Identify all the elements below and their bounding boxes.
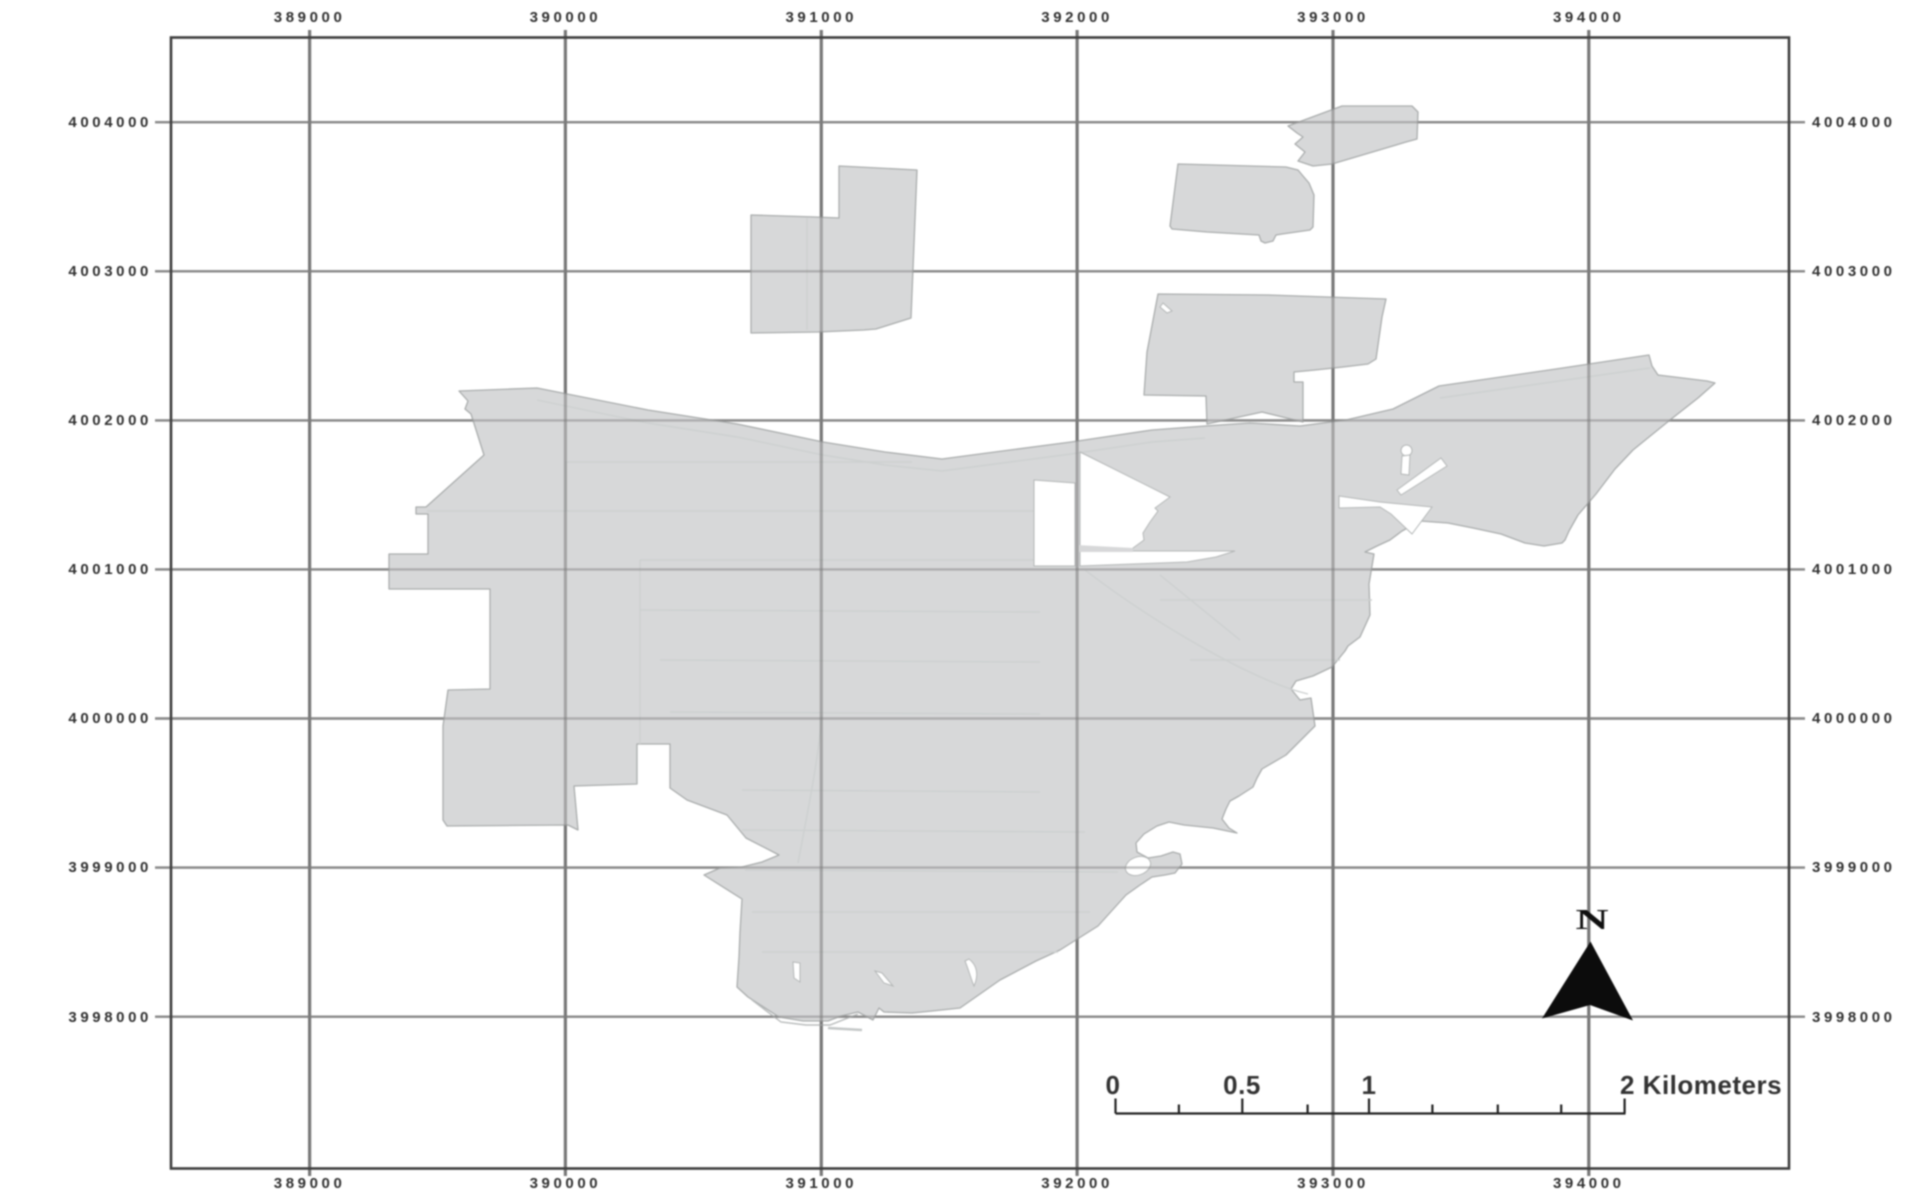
svg-text:392000: 392000 [1041,1175,1113,1192]
svg-text:0: 0 [1106,1070,1121,1100]
svg-text:N: N [1575,904,1608,936]
svg-text:4001000: 4001000 [1812,561,1896,578]
svg-text:4000000: 4000000 [1812,710,1896,727]
svg-text:4002000: 4002000 [68,412,152,429]
svg-text:2 Kilometers: 2 Kilometers [1620,1070,1782,1100]
svg-text:4003000: 4003000 [1812,263,1896,280]
svg-text:393000: 393000 [1297,9,1369,26]
svg-text:391000: 391000 [785,9,857,26]
svg-text:394000: 394000 [1553,9,1625,26]
svg-text:393000: 393000 [1297,1175,1369,1192]
svg-text:3998000: 3998000 [1812,1009,1896,1026]
svg-text:394000: 394000 [1553,1175,1625,1192]
svg-text:4001000: 4001000 [68,561,152,578]
svg-text:0.5: 0.5 [1223,1070,1261,1100]
svg-text:391000: 391000 [785,1175,857,1192]
svg-text:4000000: 4000000 [68,710,152,727]
svg-text:390000: 390000 [530,9,602,26]
svg-text:3999000: 3999000 [1812,859,1896,876]
svg-text:389000: 389000 [274,9,346,26]
svg-text:4002000: 4002000 [1812,412,1896,429]
svg-text:390000: 390000 [530,1175,602,1192]
svg-text:4004000: 4004000 [68,114,152,131]
svg-text:4003000: 4003000 [68,263,152,280]
svg-text:4004000: 4004000 [1812,114,1896,131]
svg-text:1: 1 [1362,1070,1377,1100]
svg-text:392000: 392000 [1041,9,1113,26]
svg-text:389000: 389000 [274,1175,346,1192]
svg-text:3998000: 3998000 [68,1009,152,1026]
svg-text:3999000: 3999000 [68,859,152,876]
